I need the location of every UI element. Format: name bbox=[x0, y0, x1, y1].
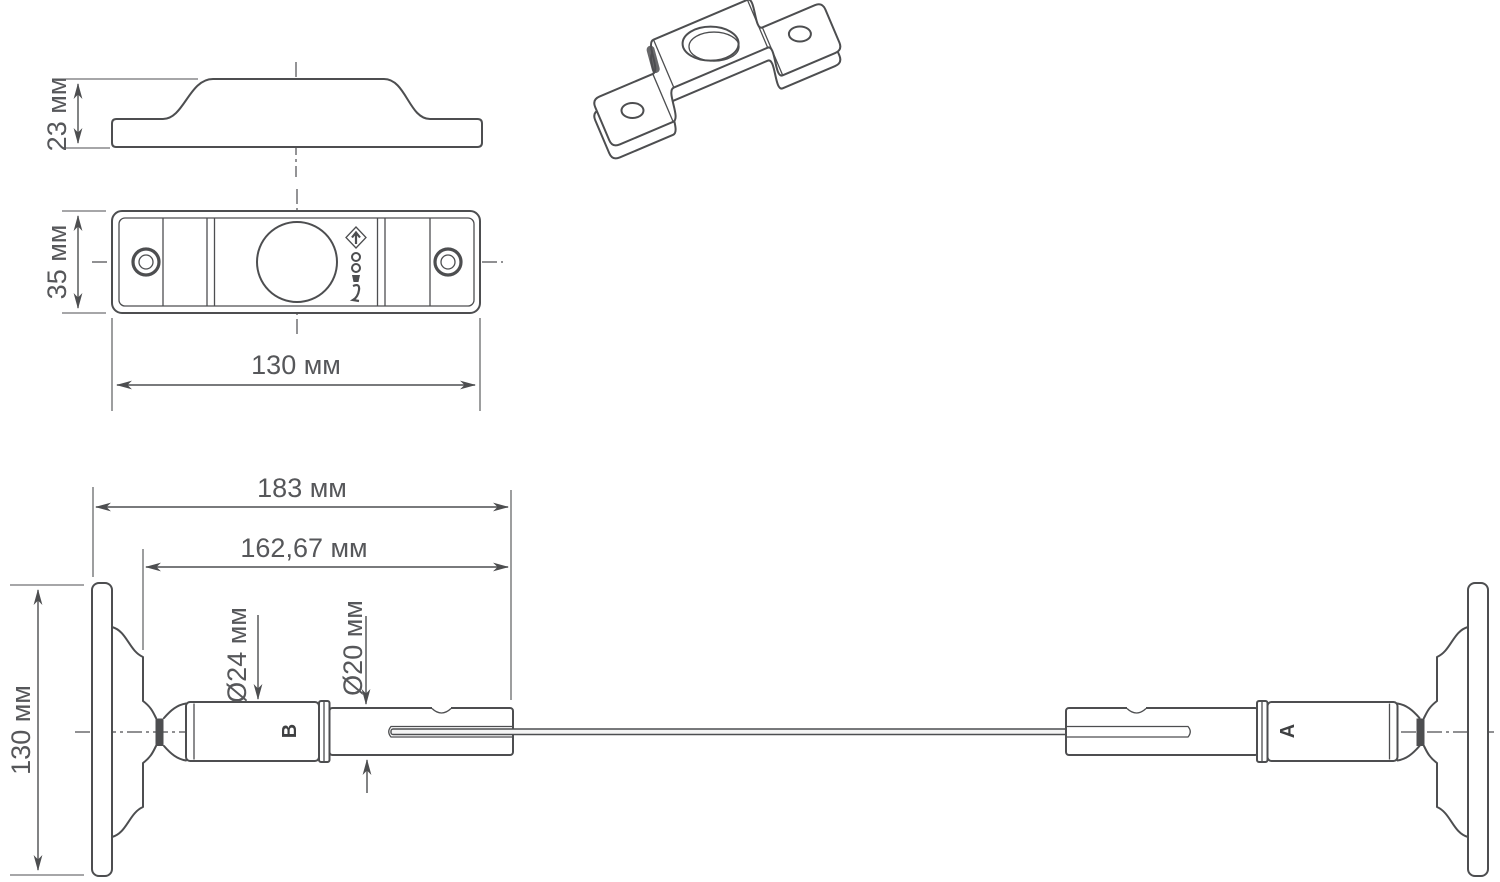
left-boot-curve bbox=[164, 704, 186, 719]
right-bracket-end-view bbox=[1398, 583, 1489, 876]
isometric-view bbox=[580, 0, 843, 161]
right-fin-plate bbox=[1468, 583, 1488, 876]
technical-drawing: 23 мм 35 мм bbox=[0, 0, 1500, 882]
technical-drawing-page: 23 мм 35 мм bbox=[0, 0, 1500, 882]
dimension-text: 23 мм bbox=[42, 77, 72, 152]
dim-130mm-plan: 130 мм bbox=[112, 318, 480, 411]
dim-162-67mm: 162,67 мм bbox=[143, 533, 508, 650]
joint-b-label: В bbox=[279, 724, 301, 738]
dimension-text: 35 мм bbox=[42, 225, 72, 300]
plan-view: 35 мм 130 мм bbox=[42, 189, 503, 411]
dimension-text: 130 мм bbox=[6, 685, 36, 775]
side-view: 23 мм bbox=[42, 62, 482, 177]
right-fin-profile bbox=[1424, 627, 1468, 718]
side-view-outline bbox=[112, 79, 482, 147]
right-boot-curve bbox=[1398, 746, 1420, 761]
joint-a-cylinder: А bbox=[1257, 701, 1398, 762]
dimension-text: 130 мм bbox=[251, 350, 341, 380]
dimension-text: 162,67 мм bbox=[240, 533, 367, 563]
dim-diameter-20mm: Ø20 мм bbox=[338, 600, 368, 793]
left-fin-plate bbox=[92, 583, 112, 876]
left-fin-profile bbox=[112, 746, 156, 837]
left-bracket-end-view bbox=[92, 583, 186, 876]
dim-183mm: 183 мм bbox=[93, 473, 511, 700]
left-neck-ring bbox=[156, 719, 164, 747]
right-tube-body bbox=[1066, 708, 1258, 755]
joint-a-label: А bbox=[1277, 724, 1299, 738]
dimension-text: Ø24 мм bbox=[222, 607, 252, 703]
dimension-text: Ø20 мм bbox=[338, 600, 368, 696]
right-boot-curve bbox=[1398, 704, 1420, 719]
dimension-text: 183 мм bbox=[257, 473, 347, 503]
left-boot-curve bbox=[164, 746, 186, 761]
dim-130mm-assembly: 130 мм bbox=[6, 585, 84, 875]
plan-outline bbox=[112, 211, 480, 313]
right-neck-ring bbox=[1417, 719, 1425, 747]
dim-diameter-24mm: Ø24 мм bbox=[222, 607, 258, 703]
right-slotted-tube bbox=[1066, 708, 1258, 755]
left-fin-profile bbox=[112, 627, 156, 718]
joint-b-cylinder: В bbox=[186, 701, 330, 762]
assembly-view: В А bbox=[6, 473, 1497, 876]
right-fin-profile bbox=[1424, 746, 1468, 837]
